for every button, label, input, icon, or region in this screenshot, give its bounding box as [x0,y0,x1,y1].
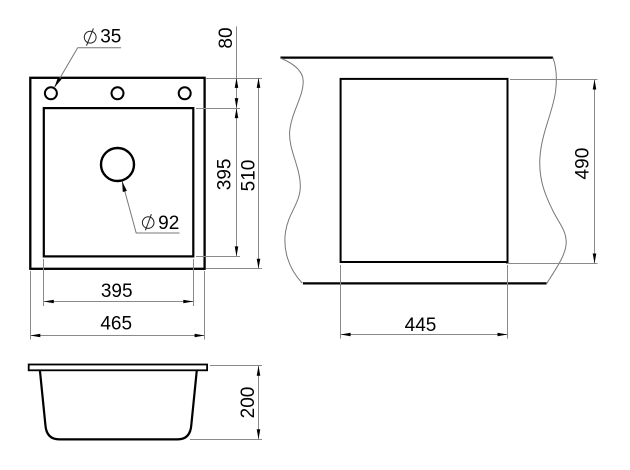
svg-text:92: 92 [158,213,179,234]
svg-text:445: 445 [405,315,437,336]
svg-text:395: 395 [101,281,133,302]
svg-text:395: 395 [215,159,236,191]
svg-text:490: 490 [573,148,594,180]
svg-text:80: 80 [216,27,237,48]
svg-text:465: 465 [100,314,132,335]
svg-text:200: 200 [238,387,259,419]
svg-text:35: 35 [100,26,121,47]
svg-text:510: 510 [239,160,260,192]
